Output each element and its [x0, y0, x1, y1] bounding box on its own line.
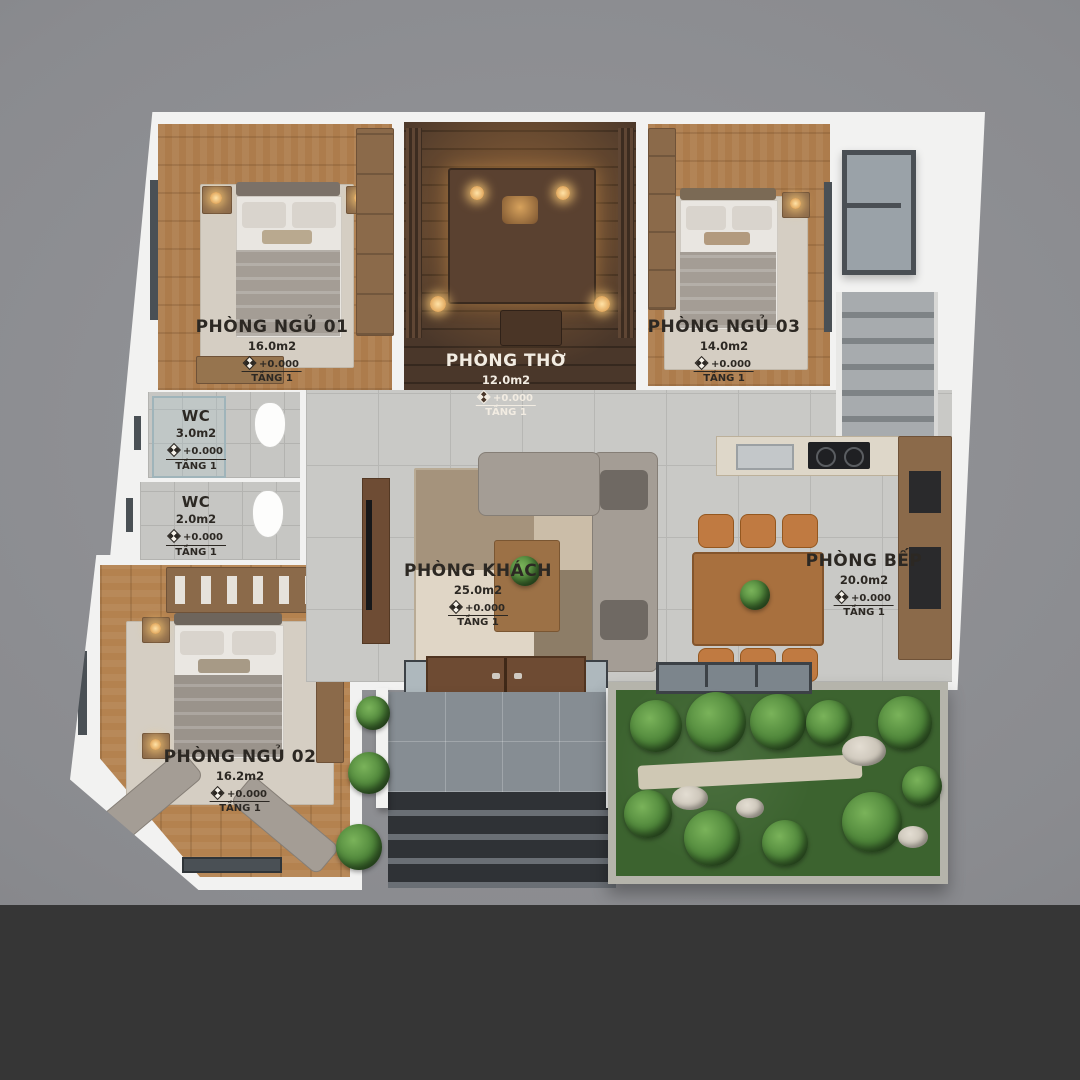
sofa-cushion: [600, 470, 648, 510]
toilet: [254, 402, 286, 448]
brand-footer: 3A DESIGN ARCHITECTURE, INTERIOR DESIGN …: [0, 905, 1080, 1080]
garden-rock: [672, 786, 708, 810]
bedroom3-bed-headboard: [680, 188, 776, 200]
bedroom3-wardrobe: [648, 128, 676, 310]
door-split: [504, 658, 507, 696]
sofa-short-arm: [478, 452, 600, 516]
porch-plant: [348, 752, 390, 794]
door-sidelight: [404, 660, 428, 694]
room-floor: TẦNG 1: [166, 461, 226, 473]
entry-steps: [388, 792, 616, 888]
room-label-wc-2: WC 2.0m2 +0.000 TẦNG 1: [166, 494, 226, 558]
cooktop: [808, 442, 870, 469]
table-lamp: [150, 739, 161, 750]
skylight-mullion: [847, 203, 901, 208]
room-elevation: +0.000: [493, 393, 533, 404]
pillow: [292, 202, 336, 228]
room-label-phong-ngu-02: PHÒNG NGỦ 02 16.2m2 +0.000 TẦNG 1: [164, 748, 317, 815]
room-floor: TẦNG 1: [446, 407, 566, 419]
porch-tiles: [388, 692, 616, 792]
door-handle: [492, 673, 500, 679]
garden-rock: [842, 736, 886, 766]
room-area: 12.0m2: [446, 374, 566, 387]
window-mullion: [705, 665, 708, 687]
benchmark-icon: [449, 600, 463, 614]
bedroom1-window: [150, 180, 158, 320]
porch-plant: [336, 824, 382, 870]
table-lamp: [210, 192, 222, 204]
toilet: [252, 490, 284, 538]
garden-plant: [806, 700, 852, 746]
garden-plant: [902, 766, 942, 806]
garden-plant: [842, 792, 902, 852]
table-lamp: [790, 198, 801, 209]
room-area: 2.0m2: [166, 513, 226, 526]
worship-wood-panel: [618, 128, 634, 338]
room-floor: TẦNG 1: [648, 373, 801, 385]
room-label-wc-1: WC 3.0m2 +0.000 TẦNG 1: [166, 408, 226, 472]
wc1-window: [134, 416, 141, 450]
table-lamp: [150, 623, 161, 634]
sofa-cushion: [600, 600, 648, 640]
kitchen-tall-cabinets: [898, 436, 952, 660]
dining-chair: [698, 514, 734, 548]
room-floor: TẦNG 1: [164, 803, 317, 815]
room-area: 20.0m2: [806, 574, 923, 587]
pillow: [686, 206, 726, 230]
room-elevation: +0.000: [465, 603, 505, 614]
room-floor: TẦNG 1: [806, 607, 923, 619]
room-area: 14.0m2: [648, 340, 801, 353]
room-label-phong-ngu-03: PHÒNG NGỦ 03 14.0m2 +0.000 TẦNG 1: [648, 318, 801, 385]
room-name: WC: [166, 408, 226, 425]
benchmark-icon: [477, 390, 491, 404]
bedroom1-bed-headboard: [236, 182, 340, 196]
pillow: [180, 631, 224, 655]
benchmark-icon: [243, 356, 257, 370]
garden-plant: [750, 694, 806, 750]
bedroom2-blanket: [174, 675, 282, 757]
bedroom1-wardrobe: [356, 128, 394, 336]
room-name: PHÒNG NGỦ 03: [648, 318, 801, 338]
room-elevation: +0.000: [183, 446, 223, 457]
room-area: 3.0m2: [166, 427, 226, 440]
kitchen-sink: [736, 444, 794, 470]
wc2-window: [126, 498, 133, 532]
room-name: WC: [166, 494, 226, 511]
dining-centerpiece: [740, 580, 770, 610]
burner: [816, 447, 836, 467]
garden-plant: [878, 696, 932, 750]
altar-offerings: [502, 196, 538, 224]
room-name: PHÒNG BẾP: [806, 552, 923, 572]
benchmark-icon: [211, 786, 225, 800]
room-elevation: +0.000: [227, 789, 267, 800]
room-floor: TẦNG 1: [196, 373, 349, 385]
kitchen-window-band: [656, 662, 812, 694]
pillow: [732, 206, 772, 230]
bay-window: [182, 857, 282, 873]
accent-pillow: [704, 232, 750, 245]
room-floor: TẦNG 1: [166, 547, 226, 559]
room-label-phong-bep: PHÒNG BẾP 20.0m2 +0.000 TẦNG 1: [806, 552, 923, 619]
room-name: PHÒNG KHÁCH: [404, 562, 552, 582]
benchmark-icon: [695, 356, 709, 370]
skylight-window: [842, 150, 916, 275]
benchmark-icon: [835, 590, 849, 604]
floor-plan-scene: PHÒNG NGỦ 01 16.0m2 +0.000 TẦNG 1 PHÒNG …: [0, 0, 1080, 905]
garden-plant: [630, 700, 682, 752]
garden-rock: [898, 826, 928, 848]
door-handle: [514, 673, 522, 679]
room-name: PHÒNG THỜ: [446, 352, 566, 372]
garden-rock: [736, 798, 764, 818]
porch-plant: [356, 696, 390, 730]
room-label-phong-tho: PHÒNG THỜ 12.0m2 +0.000 TẦNG 1: [446, 352, 566, 419]
altar-lamp: [470, 186, 484, 200]
room-elevation: +0.000: [259, 359, 299, 370]
benchmark-icon: [167, 529, 181, 543]
floor-lamp: [430, 296, 446, 312]
pillow: [242, 202, 286, 228]
pillow: [232, 631, 276, 655]
dining-chair: [740, 514, 776, 548]
garden-plant: [762, 820, 808, 866]
room-elevation: +0.000: [851, 593, 891, 604]
worship-bench: [500, 310, 562, 346]
garden-plant: [684, 810, 740, 866]
tv-screen: [366, 500, 372, 610]
room-area: 25.0m2: [404, 584, 552, 597]
burner: [844, 447, 864, 467]
garden-plant: [624, 790, 672, 838]
room-area: 16.0m2: [196, 340, 349, 353]
benchmark-icon: [167, 443, 181, 457]
door-sidelight: [584, 660, 608, 694]
room-name: PHÒNG NGỦ 02: [164, 748, 317, 768]
room-label-phong-khach: PHÒNG KHÁCH 25.0m2 +0.000 TẦNG 1: [404, 562, 552, 629]
garden-plant: [686, 692, 746, 752]
room-elevation: +0.000: [183, 532, 223, 543]
room-floor: TẦNG 1: [404, 617, 552, 629]
accent-pillow: [262, 230, 312, 244]
room-area: 16.2m2: [164, 770, 317, 783]
room-name: PHÒNG NGỦ 01: [196, 318, 349, 338]
poster-canvas: PHÒNG NGỦ 01 16.0m2 +0.000 TẦNG 1 PHÒNG …: [0, 0, 1080, 1080]
altar-lamp: [556, 186, 570, 200]
dining-chair: [782, 514, 818, 548]
bedroom2-bed-headboard: [174, 613, 282, 625]
window-mullion: [755, 665, 758, 687]
bedroom3-window: [824, 182, 832, 332]
worship-wood-panel: [406, 128, 422, 338]
side-window: [78, 651, 87, 735]
room-label-phong-ngu-01: PHÒNG NGỦ 01 16.0m2 +0.000 TẦNG 1: [196, 318, 349, 385]
accent-pillow: [198, 659, 250, 673]
floor-lamp: [594, 296, 610, 312]
built-in-oven: [909, 471, 941, 513]
room-elevation: +0.000: [711, 359, 751, 370]
